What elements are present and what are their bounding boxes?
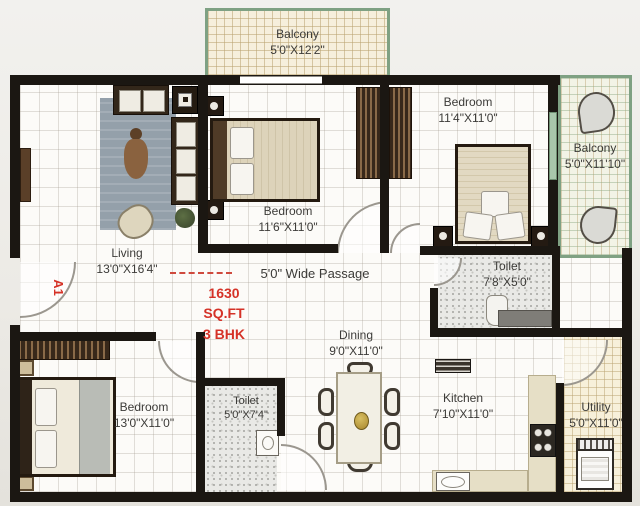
area-config-label: 1630 SQ.FT 3 BHK [186,283,262,344]
wash-basin-icon [256,430,279,456]
balcony-slider-window [240,76,322,84]
unit-code-label: A1 [51,279,66,296]
corner-table-icon [172,86,198,114]
dining-chair-icon [318,422,334,450]
wall-bedroom-top-bottom [420,246,560,255]
wall-toilet-top-right [552,255,560,335]
wall-bottom [10,492,632,502]
floor-plan: Balcony 5'0"X12'2" Bedroom 11'4"X11'0" B… [0,0,640,506]
bedroom-top-label: Bedroom 11'4"X11'0" [413,95,523,126]
balcony-right-label: Balcony 5'0"X11'10" [552,141,638,172]
wall-bedroom-mid-bottom [198,244,338,253]
toilet-counter-icon [498,310,552,327]
tv-unit-icon [20,148,31,202]
washing-machine-icon [576,438,614,490]
wall-toilet-bottom-top [205,378,285,386]
dining-label: Dining 9'0"X11'0" [301,328,411,359]
wall-bedroom-bottom-top [10,332,156,341]
dining-chair-icon [384,388,400,416]
living-label: Living 13'0"X16'4" [72,246,182,277]
wardrobe-icon [356,87,381,179]
wall-toilet-top-bottom [430,328,632,337]
balcony-top-label: Balcony 5'0"X12'2" [204,27,391,58]
bed-icon [455,144,531,244]
section-dash-line [170,272,232,274]
sofa-three-seat-icon [171,117,200,205]
sofa-two-seat-icon [113,85,169,115]
dining-table-icon [336,372,382,464]
wall-bedrooms-divider [380,85,389,253]
sink-icon [436,472,470,491]
utility-label: Utility 5'0"X11'0" [554,400,638,431]
dining-chair-icon [318,388,334,416]
person-figure-body [124,139,148,179]
side-table-icon [433,226,453,248]
plant-icon [175,208,195,228]
kitchen-platform-icon [435,359,471,373]
bedroom-bottom-label: Bedroom 13'0"X11'0" [89,400,199,431]
wall-left-lower [10,325,20,502]
wall-living-bedroom [198,85,208,252]
toilet-top-label: Toilet 7'8"X5'0" [462,259,552,290]
wall-left-upper [10,75,20,258]
wall-right [622,248,632,502]
stove-icon [530,424,556,457]
dining-chair-icon [384,422,400,450]
bed-icon [210,118,320,202]
toilet-bottom-label: Toilet 5'0"X7'4" [206,394,286,423]
kitchen-label: Kitchen 7'10"X11'0" [408,391,518,422]
wardrobe-icon [389,87,412,179]
bedroom-mid-label: Bedroom 11'6"X11'0" [233,204,343,235]
passage-label: 5'0" Wide Passage [240,266,390,283]
